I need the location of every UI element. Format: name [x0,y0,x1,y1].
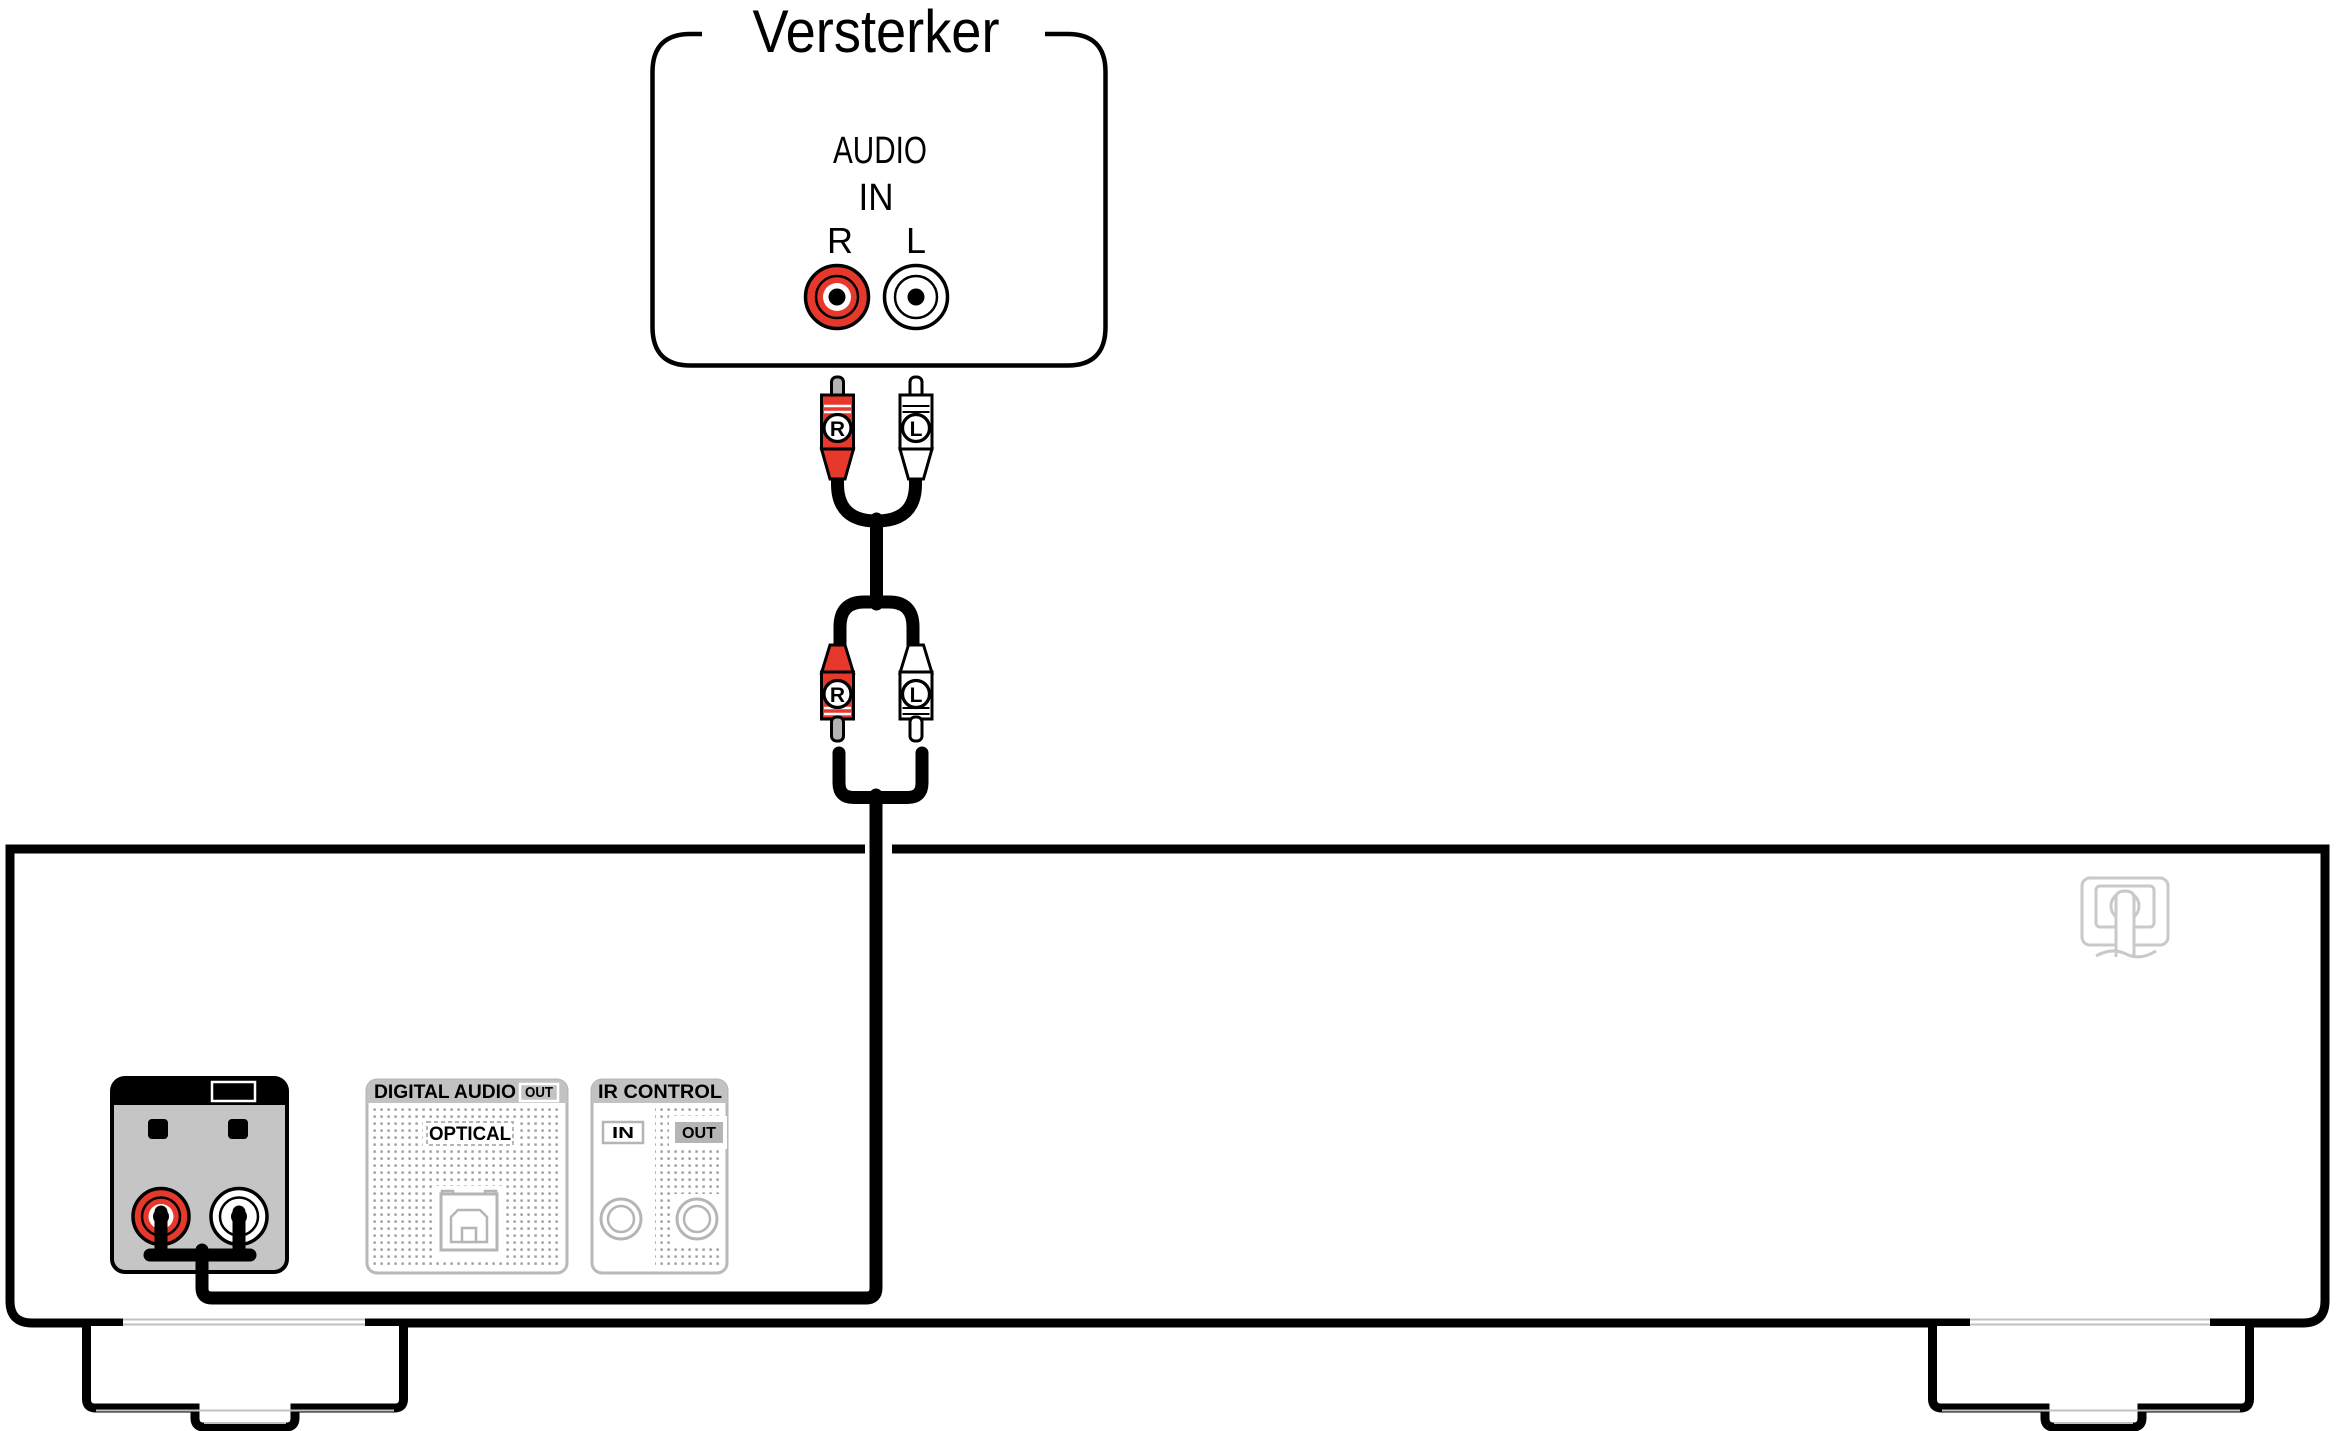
audio-out-title: AUDIO [142,1083,208,1105]
plug-neck [822,645,854,673]
device-body [10,849,2325,1323]
plug-neck [822,449,854,479]
rca-plug-bottom-right: R [822,645,854,741]
plug-letter: L [910,684,923,707]
plug-letter: R [830,418,845,441]
amplifier-title: Versterker [753,0,1000,65]
device-foot-left [87,1317,404,1427]
plug-letter: R [830,684,845,707]
jack-center [829,289,846,306]
device-rear-panel: AUDIO OUT R L [6,849,2330,1427]
optical-label: OPTICAL [429,1124,511,1145]
plug-neck [900,449,932,479]
amplifier-r-label: R [827,220,853,261]
amplifier-l-label: L [906,220,926,261]
jack-center [908,289,925,306]
plug-pin [832,717,844,741]
ir-panel-title: IR CONTROL [598,1082,722,1103]
toslink-notch [462,1228,476,1242]
amplifier-jack-right [806,266,869,329]
device-foot-right [1933,1317,2250,1427]
audio-out-panel: AUDIO OUT R L [112,1078,287,1272]
toslink-connector-icon [433,1186,505,1258]
ir-out-label: OUT [682,1125,716,1142]
audio-out-panel-body [112,1078,287,1272]
ir-in-label: IN [612,1125,634,1142]
foot-outline [1933,1326,2250,1427]
amplifier-jack-left [885,266,948,329]
rca-plug-top-right: R [822,377,854,479]
brand-logo-icon [2082,878,2168,957]
ir-out-jack-clearing [672,1194,722,1244]
foot-outline [87,1326,404,1427]
amplifier-box: Versterker AUDIO IN R L [653,0,1106,366]
ir-control-panel: IR CONTROL IN OUT [592,1080,727,1273]
rca-plug-top-left: L [900,377,932,479]
plug-letter: L [910,418,923,441]
digital-panel-title: DIGITAL AUDIO [374,1082,516,1103]
amplifier-audio-label: AUDIO [833,130,927,172]
audio-out-r-label: R [153,1121,164,1138]
connection-diagram: AUDIO OUT R L [0,0,2336,1431]
plug-pin [910,717,922,741]
rca-plug-bottom-left: L [900,645,932,741]
audio-out-badge: OUT [218,1084,250,1101]
amplifier-in-label: IN [859,177,894,219]
plug-neck [900,645,932,673]
digital-audio-panel: DIGITAL AUDIO OUT OPTICAL [367,1080,567,1273]
digital-badge: OUT [525,1084,553,1101]
logo-pillar [2116,891,2134,957]
audio-out-l-label: L [233,1121,242,1138]
